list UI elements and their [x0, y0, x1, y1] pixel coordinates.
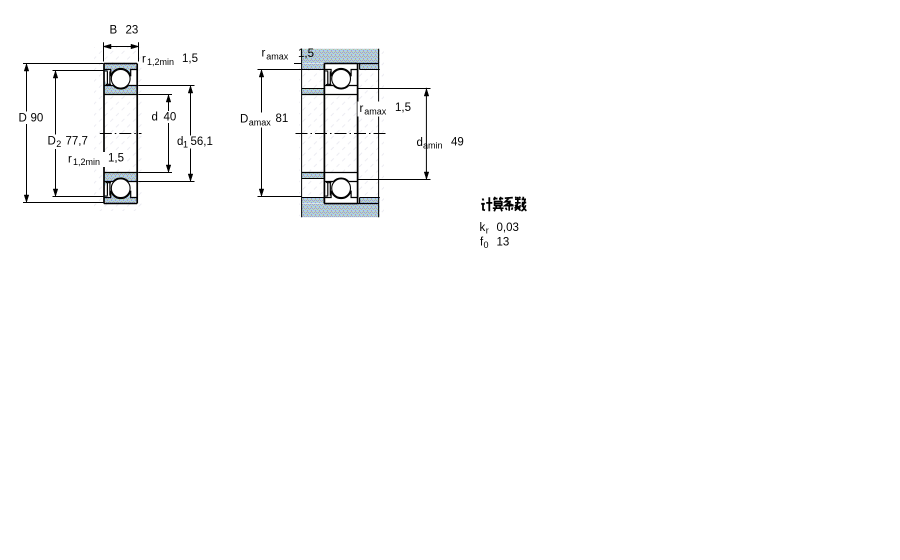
svg-text:49: 49 [451, 137, 464, 149]
svg-text:23: 23 [126, 25, 139, 37]
svg-text:k: k [480, 222, 486, 234]
svg-text:B: B [110, 25, 118, 37]
svg-text:90: 90 [31, 113, 44, 125]
svg-text:81: 81 [276, 113, 289, 125]
svg-text:r: r [360, 103, 364, 115]
svg-text:1,2min: 1,2min [147, 57, 174, 67]
svg-text:D: D [19, 113, 27, 125]
svg-text:amax: amax [364, 107, 387, 117]
svg-text:77,7: 77,7 [66, 136, 88, 148]
svg-text:1,5: 1,5 [395, 102, 411, 114]
svg-text:13: 13 [497, 237, 510, 249]
svg-text:r: r [142, 54, 146, 66]
svg-text:D: D [48, 136, 56, 148]
svg-text:2: 2 [56, 139, 61, 149]
svg-text:0,03: 0,03 [497, 222, 519, 234]
svg-text:amax: amax [249, 118, 272, 128]
svg-text:amax: amax [266, 52, 289, 62]
svg-text:1: 1 [183, 140, 188, 150]
svg-text:1,5: 1,5 [298, 48, 314, 60]
svg-text:40: 40 [164, 112, 177, 124]
svg-text:r: r [486, 226, 489, 236]
svg-text:d: d [417, 137, 423, 149]
svg-text:1,5: 1,5 [108, 153, 124, 165]
svg-text:56,1: 56,1 [191, 136, 213, 148]
svg-text:r: r [68, 154, 72, 166]
svg-text:0: 0 [484, 240, 489, 250]
svg-text:1,2min: 1,2min [73, 157, 100, 167]
svg-text:r: r [262, 48, 266, 60]
svg-text:amin: amin [423, 141, 443, 151]
svg-text:d: d [152, 112, 158, 124]
svg-text:1,5: 1,5 [182, 53, 198, 65]
svg-text:D: D [240, 114, 248, 126]
